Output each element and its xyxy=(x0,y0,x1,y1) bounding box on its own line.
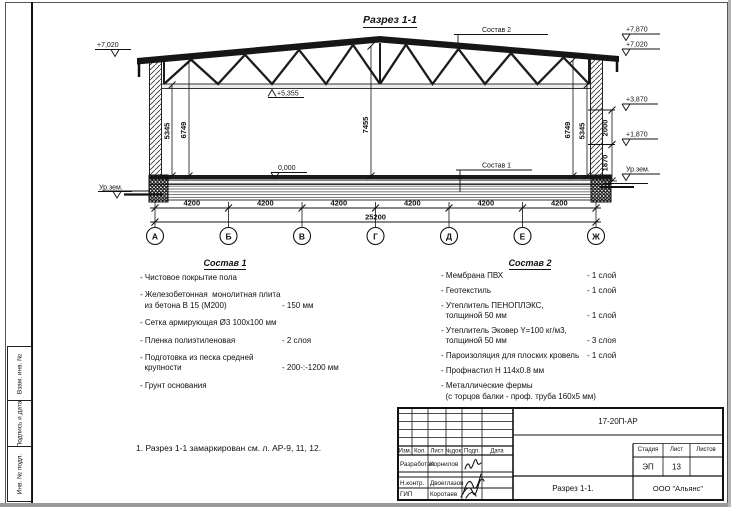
axis-b: Б xyxy=(225,232,231,242)
title-block: 17-20П-АР Изм. Кол. Лист №док. Подп. Дат… xyxy=(396,406,725,502)
axis-a: А xyxy=(152,232,158,242)
axis-d: Д xyxy=(446,232,452,242)
bay-dim-6: 4200 xyxy=(551,199,568,208)
tb-name-ncontrol: Двоеглазов xyxy=(430,480,464,487)
elev-floor: 0,000 xyxy=(278,165,296,172)
tb-header-list: Лист xyxy=(430,449,443,455)
sheet-label: Лист xyxy=(670,447,683,453)
axis-g: Г xyxy=(373,232,378,242)
list-item: - Сетка армирующая Ø3 100х100 мм xyxy=(140,318,352,328)
list-item: - Грунт основания xyxy=(140,381,352,391)
drawing-sheet: Взам. инв. № Подпись и дата Инв. № подл.… xyxy=(0,0,731,507)
signature-icon xyxy=(465,460,481,470)
roof-truss xyxy=(137,36,619,89)
bottom-chord xyxy=(162,84,591,89)
sostav1-heading: Состав 1 xyxy=(140,253,310,271)
dim-right-6749: 6749 xyxy=(563,122,572,139)
elev-right-eave: +7,020 xyxy=(626,42,648,49)
dim-wall-2000: 2000 xyxy=(601,120,610,137)
bay-dim-1: 4200 xyxy=(183,199,200,208)
tb-header-podp: Подп. xyxy=(464,449,480,455)
axis-v: В xyxy=(299,232,305,242)
margin-box-vzam: Взам. инв. № xyxy=(7,346,32,402)
list-item: - Профнастил Н 114х0.8 мм xyxy=(441,366,689,376)
tb-company: ООО "Альянс" xyxy=(653,484,703,493)
margin-box-podpis: Подпись и дата xyxy=(7,400,32,448)
sostav2-list: - Мембрана ПВХ- 1 слой - Геотекстиль- 1 … xyxy=(441,271,689,406)
tb-header-kol: Кол. xyxy=(414,449,426,455)
signature-icon xyxy=(461,474,484,498)
sheets-label: Листов xyxy=(696,447,716,453)
margin-label-podpis: Подпись и дата xyxy=(16,401,23,448)
margin-label-vzam: Взам. инв. № xyxy=(16,354,23,394)
elev-right-joint-lower: +1,870 xyxy=(626,132,648,139)
bay-dim-3: 4200 xyxy=(330,199,347,208)
sostav2-heading: Состав 2 xyxy=(445,253,615,271)
margin-label-inv: Инв. № подл. xyxy=(16,454,23,495)
tb-drawing-name: Разрез 1-1. xyxy=(552,484,594,493)
roof-sandwich xyxy=(137,36,619,65)
elev-truss-bottom: +5,355 xyxy=(277,91,299,98)
bay-dim-5: 4200 xyxy=(477,199,494,208)
callout-sostav2: Состав 2 xyxy=(482,27,511,34)
dim-right-5345: 5345 xyxy=(578,123,587,140)
sheet-number: 13 xyxy=(672,463,681,472)
dim-wall-1870: 1870 xyxy=(601,155,610,172)
floor-slab xyxy=(149,175,611,202)
axis-zh: Ж xyxy=(591,232,600,242)
bay-dim-4: 4200 xyxy=(404,199,421,208)
page-edge-shadow-bottom xyxy=(0,503,731,507)
list-item: - Утеплитель ПЕНОПЛЭКС, толщиной 50 мм- … xyxy=(441,301,689,322)
total-dim: 25200 xyxy=(365,213,386,222)
elev-right-joint-upper: +3,870 xyxy=(626,97,648,104)
elev-right-ridge: +7,870 xyxy=(626,27,648,34)
doc-number: 17-20П-АР xyxy=(598,417,638,426)
elev-left-top: +7,020 xyxy=(97,42,119,49)
sostav1-list: - Чистовое покрытие пола - Железобетонна… xyxy=(140,273,352,398)
list-item: - Геотекстиль- 1 слой xyxy=(441,286,689,296)
list-item: - Мембрана ПВХ- 1 слой xyxy=(441,271,689,281)
tb-role-gip: ГИП xyxy=(400,491,413,498)
stage-value: ЭП xyxy=(642,463,654,472)
left-column xyxy=(150,62,162,175)
list-item: - Пароизоляция для плоских кровель- 1 сл… xyxy=(441,351,689,361)
drawing-note: 1. Разрез 1-1 замаркирован см. л. АР-9, … xyxy=(136,443,321,453)
tb-name-developer: Корнилов xyxy=(430,461,459,468)
dim-left-6749: 6749 xyxy=(179,122,188,139)
elev-right-ground: Ур.зем. xyxy=(626,167,650,174)
stage-label: Стадия xyxy=(638,447,658,453)
list-item: - Металлические фермы (с торцов балки - … xyxy=(441,381,689,402)
section-drawing: 5345 6749 7455 6749 5345 2000 1870 +7,02… xyxy=(0,0,731,252)
list-item: - Пленка полиэтиленовая- 2 слоя xyxy=(140,336,352,346)
tb-name-gip: Коротаев xyxy=(430,491,458,498)
elev-left-ground: Ур.зем. xyxy=(99,185,123,192)
list-item: - Подготовка из песка средней крупности-… xyxy=(140,353,352,374)
margin-box-inv: Инв. № подл. xyxy=(7,446,32,502)
tb-role-ncontrol: Н.контр. xyxy=(400,480,424,487)
callout-sostav1: Состав 1 xyxy=(482,163,511,170)
dim-left-5345: 5345 xyxy=(163,123,172,140)
tb-header-izm: Изм. xyxy=(399,449,412,455)
tb-header-data: Дата xyxy=(490,449,504,455)
list-item: - Железобетонная монолитная плита из бет… xyxy=(140,290,352,311)
tb-header-ndoc: №док. xyxy=(445,448,463,455)
list-item: - Чистовое покрытие пола xyxy=(140,273,352,283)
axis-e: Е xyxy=(520,232,526,242)
bay-dim-2: 4200 xyxy=(257,199,274,208)
list-item: - Утеплитель Эковер Y=100 кг/м3, толщино… xyxy=(441,326,689,347)
dim-center-7455: 7455 xyxy=(361,117,370,134)
